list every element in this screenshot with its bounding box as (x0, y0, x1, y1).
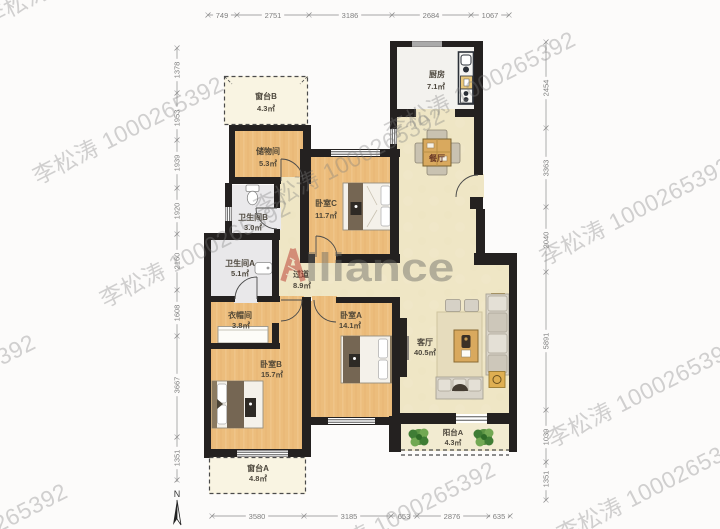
svg-text:5.3㎡: 5.3㎡ (259, 158, 277, 168)
svg-text:1378: 1378 (173, 62, 182, 79)
svg-text:2876: 2876 (444, 512, 461, 521)
svg-text:4.8㎡: 4.8㎡ (249, 473, 267, 483)
svg-text:卫生间A: 卫生间A (225, 258, 255, 268)
svg-text:3667: 3667 (173, 377, 182, 394)
svg-text:3363: 3363 (542, 160, 551, 177)
svg-text:卧室B: 卧室B (260, 359, 282, 369)
svg-text:卧室C: 卧室C (315, 198, 337, 208)
svg-text:卧室A: 卧室A (340, 310, 362, 320)
svg-text:lliance: lliance (305, 246, 454, 290)
svg-text:1351: 1351 (173, 450, 182, 467)
svg-text:阳台A: 阳台A (443, 427, 464, 437)
svg-text:N: N (174, 489, 181, 499)
svg-text:窗台A: 窗台A (247, 463, 269, 473)
svg-text:1939: 1939 (173, 155, 182, 172)
svg-text:1608: 1608 (173, 305, 182, 322)
svg-text:3186: 3186 (342, 11, 359, 20)
svg-text:635: 635 (493, 512, 506, 521)
svg-text:窗台B: 窗台B (255, 91, 277, 101)
svg-text:储物间: 储物间 (255, 146, 280, 156)
svg-text:2751: 2751 (265, 11, 282, 20)
svg-text:749: 749 (216, 11, 229, 20)
svg-text:4.3㎡: 4.3㎡ (257, 103, 275, 113)
svg-text:2454: 2454 (542, 80, 551, 97)
svg-text:4.3㎡: 4.3㎡ (445, 438, 462, 447)
svg-text:1920: 1920 (173, 203, 182, 220)
svg-text:厨房: 厨房 (429, 69, 445, 79)
svg-text:2684: 2684 (423, 11, 440, 20)
svg-text:1351: 1351 (542, 471, 551, 488)
svg-text:14.1㎡: 14.1㎡ (339, 320, 362, 330)
svg-text:3580: 3580 (249, 512, 266, 521)
svg-text:11.7㎡: 11.7㎡ (315, 210, 337, 220)
svg-text:5.1㎡: 5.1㎡ (231, 268, 249, 278)
svg-text:15.7㎡: 15.7㎡ (261, 369, 284, 379)
svg-text:1067: 1067 (482, 11, 499, 20)
svg-text:40.5㎡: 40.5㎡ (414, 347, 437, 357)
svg-text:3.8㎡: 3.8㎡ (232, 320, 250, 330)
svg-text:餐厅: 餐厅 (428, 153, 445, 163)
svg-text:3185: 3185 (341, 512, 358, 521)
svg-text:衣帽间: 衣帽间 (228, 310, 252, 320)
svg-text:5891: 5891 (542, 333, 551, 350)
svg-text:客厅: 客厅 (416, 337, 433, 347)
